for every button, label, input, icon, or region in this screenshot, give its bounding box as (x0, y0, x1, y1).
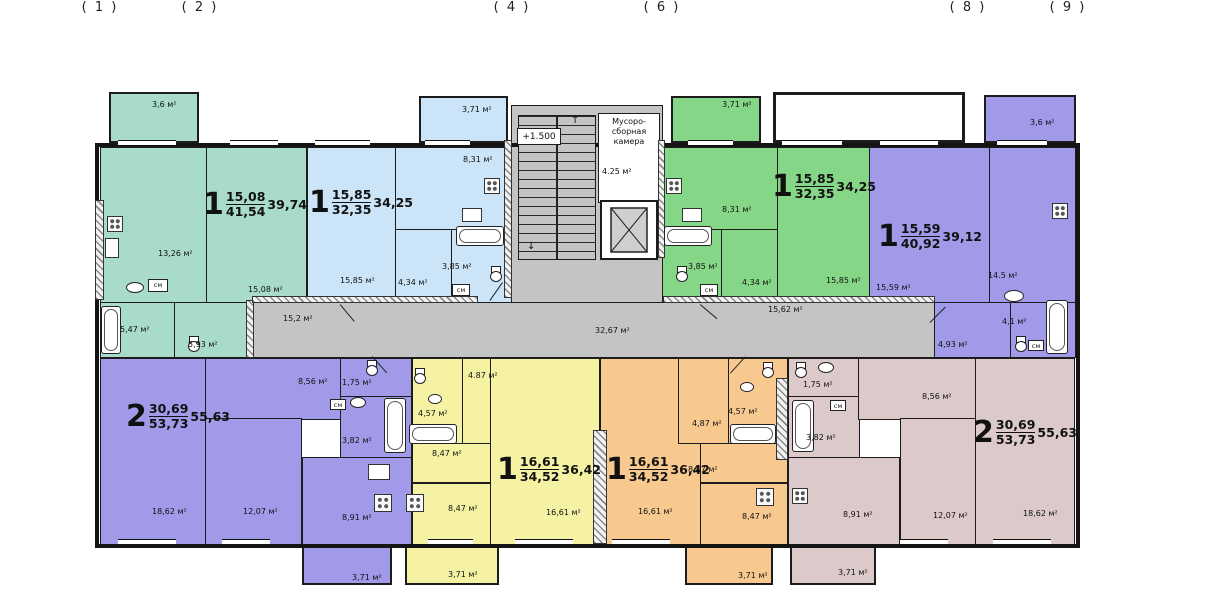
hall-orange (678, 358, 730, 444)
rooms-count: 1 (606, 457, 627, 483)
window (222, 539, 270, 545)
kitchen-violet2 (302, 457, 412, 546)
toilet-icon (795, 362, 807, 378)
window (612, 539, 670, 545)
hall-area: 8,56 м² (922, 393, 952, 401)
total-area: 53,73 (996, 433, 1036, 447)
stair-down-arrow-icon: ↓ (527, 242, 535, 252)
window (782, 140, 842, 146)
total-area: 53,73 (149, 417, 189, 431)
room2-violet2 (205, 418, 302, 546)
balcony-area: 3,71 м² (838, 569, 868, 577)
wc-area: 1,75 м² (342, 379, 372, 387)
apartment-label-violet2: 2 30,6953,73 55,63 (126, 402, 230, 431)
sink-icon (350, 397, 366, 408)
stair-up-arrow-icon: ↑ (571, 116, 579, 126)
bath-area: 4,57 м² (728, 408, 758, 416)
kitchen-area: 8,31 м² (463, 156, 493, 164)
total-area: 34,52 (629, 470, 669, 484)
rooms-count: 1 (203, 192, 224, 218)
axis-label-1: ( 1 ) (82, 0, 119, 15)
rooms-count: 1 (878, 224, 899, 250)
rooms-count: 1 (772, 174, 793, 200)
rooms-count: 2 (973, 420, 994, 446)
window (880, 140, 938, 146)
bathtub-icon (730, 424, 776, 444)
sink-icon (818, 362, 834, 373)
wc-area: 1,75 м² (803, 381, 833, 389)
room-area: 15,85 м² (826, 277, 861, 285)
living-area: 16,61 (520, 455, 560, 470)
kitchen-counter-icon (105, 238, 119, 258)
kitchen-counter-icon (682, 208, 702, 222)
hall-area: 4,93 м² (938, 341, 968, 349)
hall-area: 4,34 м² (742, 279, 772, 287)
rooms-count: 1 (309, 190, 330, 216)
room-area: 16,61 м² (546, 509, 581, 517)
balcony-area: 3,6 м² (1030, 119, 1055, 127)
total-area: 32,35 (795, 187, 835, 201)
toilet-icon (762, 362, 774, 378)
wall-kitchen-orange (701, 482, 787, 484)
balcony-area: 3,71 м² (738, 572, 768, 580)
washing-machine-label: см (452, 284, 470, 296)
toilet-icon (414, 368, 426, 384)
kitchen-counter-icon (368, 464, 390, 480)
apartment-label-green: 1 15,8532,35 34,25 (772, 172, 876, 201)
total-area: 40,92 (901, 237, 941, 251)
overall-area: 39,74 (267, 197, 307, 212)
balcony-rose (790, 546, 876, 585)
trash-room-area: 4.25 м² (602, 168, 632, 176)
room-area: 12,07 м² (243, 508, 278, 516)
window (230, 140, 278, 146)
corridor-center-area: 32,67 м² (595, 327, 630, 335)
stove-icon (406, 494, 424, 512)
washing-machine-label: см (330, 399, 346, 410)
stove-icon (792, 488, 808, 504)
room-area: 15,08 м² (248, 286, 283, 294)
apartment-label-orange: 1 16,6134,52 36,42 (606, 455, 710, 484)
balcony-yellow (405, 546, 499, 585)
kitchen-area: 13,26 м² (158, 250, 193, 258)
balcony-area: 3,71 м² (352, 574, 382, 582)
bathtub-icon (456, 226, 504, 246)
window (688, 140, 733, 146)
stove-icon (756, 488, 774, 506)
stove-icon (374, 494, 392, 512)
overall-area: 34,25 (836, 179, 876, 194)
stove-icon (107, 216, 123, 232)
total-area: 34,52 (520, 470, 560, 484)
bath-area: 3,85 м² (442, 263, 472, 271)
vent-shaft-orange-rose (776, 378, 788, 460)
window (118, 539, 176, 545)
living-area: 15,85 (795, 172, 835, 187)
bathtub-icon (409, 424, 457, 444)
living-area: 30,69 (149, 402, 189, 417)
toilet-icon (1015, 336, 1027, 352)
bath-area: 3,82 м² (806, 434, 836, 442)
total-area: 32,35 (332, 203, 372, 217)
bathtub-icon (792, 400, 814, 452)
balcony-blue (419, 96, 508, 143)
living-area: 15,08 (226, 190, 266, 205)
stove-icon (666, 178, 682, 194)
axis-label-8: ( 8 ) (950, 0, 987, 15)
living-area: 30,69 (996, 418, 1036, 433)
apartment-label-yellow: 1 16,6134,52 36,42 (497, 455, 601, 484)
room2-rose (900, 418, 977, 546)
trash-room-label-2: сборная (612, 128, 646, 136)
hall-area: 4,34 м² (398, 279, 428, 287)
room-hall-violet (933, 302, 1012, 358)
wall-kitchen-yellow (413, 482, 491, 484)
washing-machine-label: см (700, 284, 718, 296)
bath-area: 3,82 м² (342, 437, 372, 445)
room-hall-teal (174, 302, 254, 358)
apartment-label-violet: 1 15,5940,92 39,12 (878, 222, 982, 251)
balcony-area: 3,71 м² (722, 101, 752, 109)
hall-area: 5,93 м² (188, 341, 218, 349)
hatch-wall-corridor-right (663, 296, 935, 303)
corridor-left-area: 15,2 м² (283, 315, 313, 323)
bath-area: 4,1 м² (1002, 318, 1027, 326)
corridor-area: 8,47 м² (432, 450, 462, 458)
trash-room-label-3: камера (614, 138, 645, 146)
axis-label-9: ( 9 ) (1050, 0, 1087, 15)
bathtub-icon (101, 306, 121, 354)
room-hall-green (721, 229, 779, 303)
hall-rose (858, 358, 977, 420)
sink-icon (740, 382, 754, 392)
balcony-area: 3,6 м² (152, 101, 177, 109)
bathtub-icon (1046, 300, 1068, 354)
kitchen-counter-icon (462, 208, 482, 222)
kitchen-area: 8,91 м² (342, 514, 372, 522)
window (428, 539, 473, 545)
rooms-count: 2 (126, 404, 147, 430)
hall-area: 4,87 м² (692, 420, 722, 428)
overall-area: 55,63 (1037, 425, 1077, 440)
room-area: 18,62 м² (152, 508, 187, 516)
overall-area: 36,42 (561, 462, 601, 477)
axis-label-6: ( 6 ) (644, 0, 681, 15)
washing-machine-label: см (148, 279, 168, 292)
kitchen-area: 14.5 м² (988, 272, 1018, 280)
window (118, 140, 176, 146)
overall-area: 55,63 (190, 409, 230, 424)
apartment-label-teal: 1 15,0841,54 39,74 (203, 190, 307, 219)
stove-icon (484, 178, 500, 194)
room-area: 12,07 м² (933, 512, 968, 520)
bathtub-icon (384, 398, 406, 453)
kitchen-area: 8,31 м² (722, 206, 752, 214)
washing-machine-label: см (830, 400, 846, 411)
bathtub-icon (664, 226, 712, 246)
washing-machine-label: см (1028, 340, 1044, 351)
room-living-teal (206, 147, 307, 303)
kitchen-area: 8,91 м² (843, 511, 873, 519)
overall-area: 39,12 (942, 229, 982, 244)
axis-label-4: ( 4 ) (494, 0, 531, 15)
bath-area: 5,47 м² (120, 326, 150, 334)
bath-area: 4,57 м² (418, 410, 448, 418)
balcony-area: 3,71 м² (448, 571, 478, 579)
apartment-label-blue: 1 15,8532,35 34,25 (309, 188, 413, 217)
trash-room-label-1: Мусоро- (612, 118, 646, 126)
living-area: 15,59 (901, 222, 941, 237)
vent-shaft-teal (246, 300, 254, 358)
room-area: 15,59 м² (876, 284, 911, 292)
overall-area: 34,25 (373, 195, 413, 210)
window (315, 140, 370, 146)
room-area: 15,85 м² (340, 277, 375, 285)
window (900, 539, 948, 545)
corridor-right-area: 15,62 м² (768, 306, 803, 314)
kitchen-area: 8,47 м² (742, 513, 772, 521)
living-area: 15,85 (332, 188, 372, 203)
balcony-area: 3,71 м² (462, 106, 492, 114)
bath-area: 3,85 м² (688, 263, 718, 271)
hall-area: 4.87 м² (468, 372, 498, 380)
vent-shaft-stairs (504, 140, 512, 298)
room-area: 18,62 м² (1023, 510, 1058, 518)
elevator-icon (610, 207, 648, 253)
toilet-icon (366, 360, 378, 376)
total-area: 41,54 (226, 205, 266, 219)
kitchen-area: 8,47 м² (448, 505, 478, 513)
window (993, 539, 1051, 545)
corridor-band (252, 302, 935, 358)
overall-area: 36,42 (670, 462, 710, 477)
rooms-count: 1 (497, 457, 518, 483)
toilet-icon (490, 266, 502, 282)
sink-icon (428, 394, 442, 404)
window (425, 140, 470, 146)
kitchen-corridor-orange (700, 443, 788, 546)
balcony-white (773, 92, 965, 143)
axis-label-2: ( 2 ) (182, 0, 219, 15)
living-area: 16,61 (629, 455, 669, 470)
room1-violet2 (100, 358, 207, 546)
sink-icon (1004, 290, 1024, 302)
window (997, 140, 1047, 146)
hatch-wall-corridor-left (252, 296, 478, 303)
toilet-icon (676, 266, 688, 282)
room-area: 16,61 м² (638, 508, 673, 516)
hall-area: 8,56 м² (298, 378, 328, 386)
vent-shaft-yellow-orange (593, 430, 607, 544)
level-mark: +1.500 (522, 132, 555, 142)
apartment-label-rose: 2 30,6953,73 55,63 (973, 418, 1077, 447)
stove-icon (1052, 203, 1068, 219)
kitchen-corridor-yellow (412, 443, 492, 546)
window (515, 539, 573, 545)
sink-icon (126, 282, 144, 293)
vent-shaft-left (95, 200, 104, 300)
floor-plan: ( 1 ) ( 2 ) ( 4 ) ( 6 ) ( 8 ) ( 9 ) (0, 0, 1208, 601)
